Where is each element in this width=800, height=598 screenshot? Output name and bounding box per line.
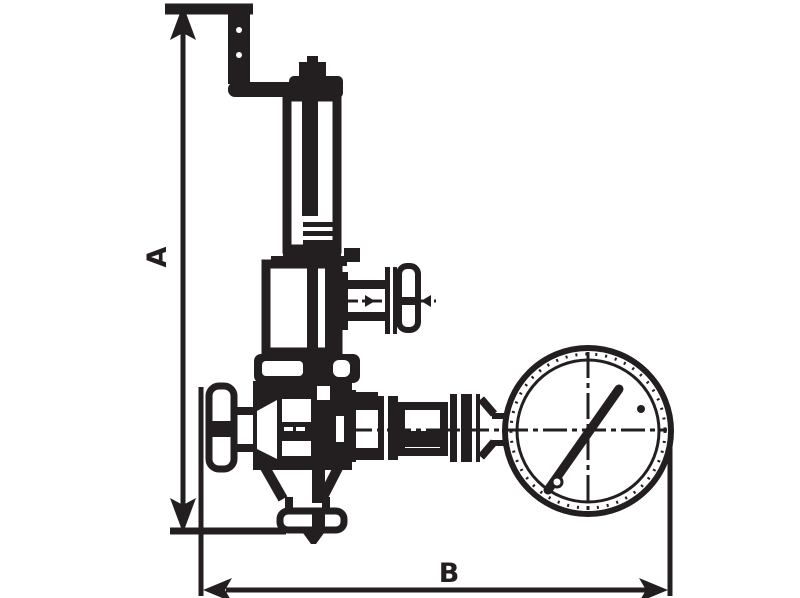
- handwheel: [206, 386, 255, 469]
- hex-nut-facet: [476, 394, 480, 462]
- gauge-dial-dot: [637, 405, 645, 413]
- thread-tick: [303, 222, 333, 227]
- outlet-flange-stripe: [312, 509, 325, 533]
- handwheel-hub: [206, 421, 237, 437]
- side-branch: [336, 266, 436, 334]
- spring-column: [271, 97, 360, 266]
- hex-nut-facet: [450, 394, 457, 462]
- flange-port: [333, 360, 350, 377]
- hex-nut-facet: [461, 394, 472, 462]
- connector-block-bottom: [356, 448, 378, 460]
- thread-tick: [303, 231, 333, 236]
- connector-plate: [344, 390, 356, 462]
- outlet-stem-stripe: [312, 462, 325, 503]
- branch-top-wall: [340, 280, 387, 289]
- connector-block-top: [356, 392, 378, 410]
- valve-dimensional-drawing: A B: [0, 0, 800, 598]
- upper-flange: [254, 354, 360, 383]
- centerline-arrow-icon: [365, 295, 375, 307]
- dim-label-b: B: [439, 558, 460, 589]
- hex-nut-facet: [378, 396, 384, 460]
- pressure-gauge: [348, 348, 671, 514]
- crank-pin-hole: [236, 27, 242, 33]
- flange-groove: [262, 361, 303, 376]
- centerline-arrow-icon: [421, 295, 431, 307]
- crank-vertical-arm: [228, 4, 250, 84]
- valve-body: [253, 381, 352, 470]
- crank-pin-hole: [236, 52, 242, 58]
- dim-label-a: A: [142, 246, 173, 267]
- hex-nut-facet: [388, 396, 398, 460]
- stem-top: [289, 56, 343, 98]
- gauge-connector: [344, 390, 516, 462]
- thread-tick: [303, 240, 333, 245]
- bonnet-stem-stripe: [307, 267, 318, 350]
- gauge-pivot-ring: [552, 477, 562, 487]
- technical-drawing-canvas: A B: [0, 0, 800, 598]
- bonnet: [266, 264, 338, 352]
- cylinder-band: [402, 431, 443, 447]
- tee-handle-hub: [396, 297, 420, 305]
- branch-bottom-wall: [340, 312, 387, 321]
- body-cavity-upper: [282, 399, 311, 422]
- seat-mark: [284, 427, 293, 431]
- seat-mark: [296, 427, 305, 431]
- column-inner-stem: [302, 99, 318, 216]
- body-notch: [317, 386, 330, 400]
- taper-edge: [481, 399, 494, 414]
- outlet-nipple: [303, 533, 324, 544]
- handle-washer: [385, 267, 390, 334]
- body-cavity-lower: [282, 441, 311, 456]
- transition-tab: [344, 248, 360, 262]
